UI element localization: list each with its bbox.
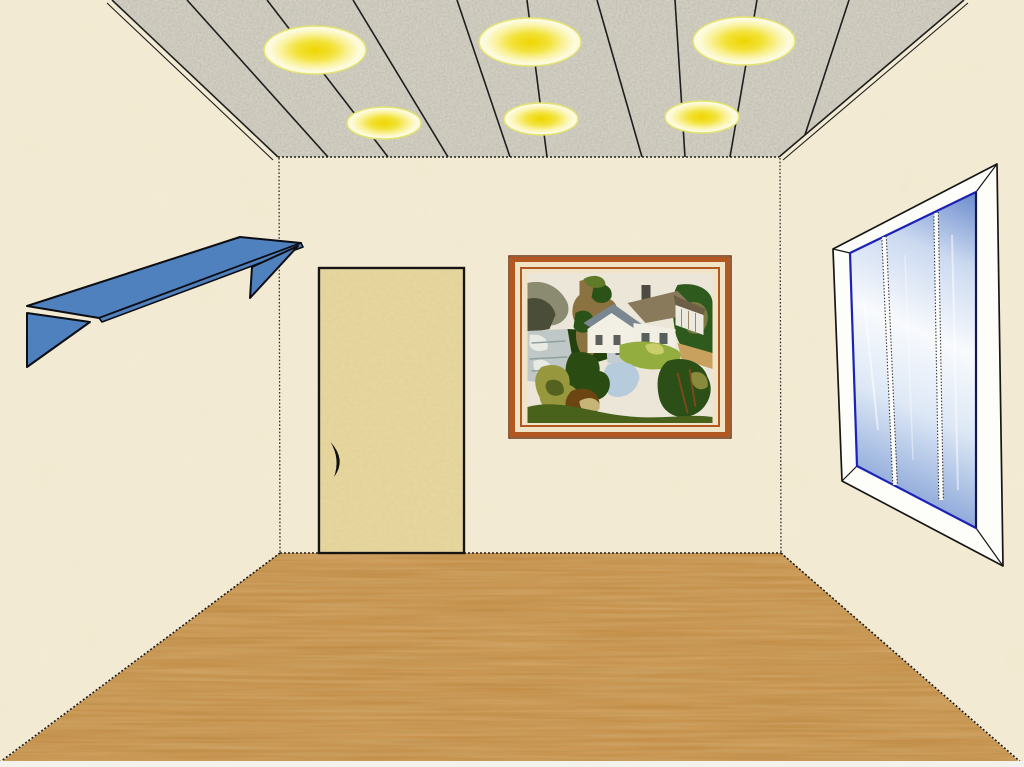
ceiling-light-large bbox=[264, 26, 366, 74]
ceiling-light-small bbox=[347, 107, 421, 139]
room-illustration bbox=[0, 0, 1024, 767]
art-window bbox=[596, 335, 603, 345]
framed-picture bbox=[509, 256, 731, 438]
ceiling-light-large bbox=[479, 18, 581, 66]
ceiling-light-small bbox=[504, 103, 578, 135]
door-texture bbox=[320, 269, 463, 552]
door bbox=[319, 268, 464, 553]
bottom-margin-strip bbox=[0, 761, 1024, 767]
picture-art bbox=[528, 273, 713, 423]
art-window bbox=[660, 333, 668, 344]
art-window bbox=[614, 335, 621, 345]
ceiling-light-large bbox=[693, 17, 795, 65]
ceiling-light-small bbox=[665, 101, 739, 133]
